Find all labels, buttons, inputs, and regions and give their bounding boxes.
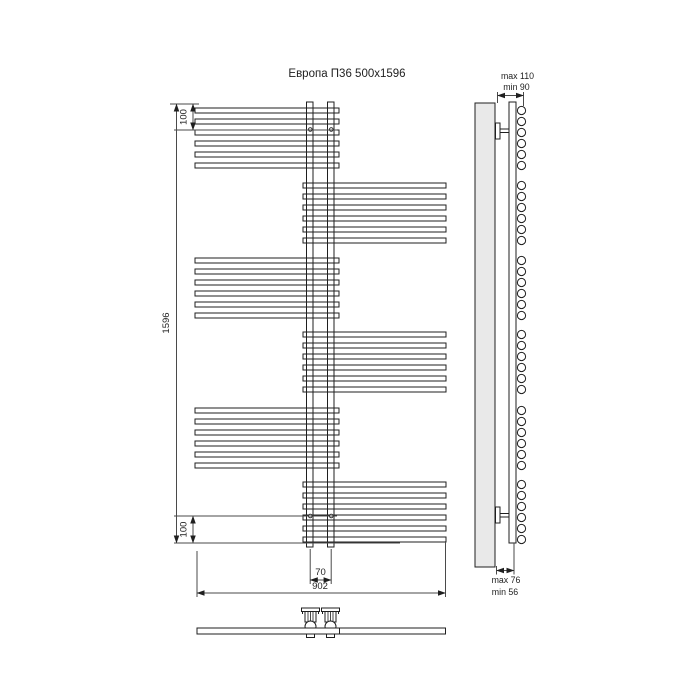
towel-bar (195, 258, 339, 263)
towel-bar (195, 463, 339, 468)
towel-bar (195, 108, 339, 113)
side-tube-end (517, 513, 525, 521)
side-riser-tube (509, 102, 516, 543)
side-tube-end (517, 352, 525, 360)
side-tube-end (517, 267, 525, 275)
side-tube-end (517, 181, 525, 189)
side-tube-end (517, 311, 525, 319)
towel-bar (303, 216, 446, 221)
riser-tube (328, 102, 335, 547)
towel-bar (303, 526, 446, 531)
side-tube-end (517, 278, 525, 286)
towel-bar (195, 441, 339, 446)
side-tube-end (517, 330, 525, 338)
side-tube-end (517, 225, 525, 233)
side-tube-end (517, 341, 525, 349)
towel-bar (195, 313, 339, 318)
towel-bar (195, 119, 339, 124)
valve-cap (302, 608, 320, 612)
drawing-title: Европа П36 500x1596 (288, 68, 405, 80)
side-tube-end (517, 117, 525, 125)
side-tube-end (517, 203, 525, 211)
side-tube-end (517, 150, 525, 158)
side-tube-end (517, 374, 525, 382)
bottom-bracket (496, 507, 510, 523)
side-tube-end (517, 161, 525, 169)
dim-wall-top-max: max 110 (501, 71, 534, 81)
dim-wall-top-min: min 90 (503, 82, 530, 92)
side-tube-end (517, 192, 525, 200)
towel-bar (303, 227, 446, 232)
riser-tube (307, 102, 314, 547)
side-tube-end (517, 480, 525, 488)
bottom-view-profile (197, 628, 446, 634)
side-tube-end (517, 439, 525, 447)
towel-bar (303, 205, 446, 210)
valve-tail (307, 634, 315, 638)
towel-bar (303, 365, 446, 370)
towel-bar (195, 269, 339, 274)
side-tube-end (517, 289, 525, 297)
side-tube-end (517, 406, 525, 414)
towel-bar (195, 130, 339, 135)
dim-bottom-offset: 100 (179, 522, 190, 538)
towel-bar (195, 163, 339, 168)
side-tube-end (517, 139, 525, 147)
wall-panel (475, 103, 495, 567)
towel-bar (303, 332, 446, 337)
towel-bar (195, 430, 339, 435)
side-tube-end (517, 535, 525, 543)
valve-cap (322, 608, 340, 612)
towel-bar (195, 291, 339, 296)
towel-bar (195, 302, 339, 307)
dim-overall-height: 1596 (161, 312, 172, 333)
valve-tail (327, 634, 335, 638)
towel-bar (303, 238, 446, 243)
side-tube-end (517, 428, 525, 436)
towel-bar (195, 280, 339, 285)
towel-bar (303, 504, 446, 509)
radiator-drawing-canvas: Европа П36 500x1596 1596 100 (0, 0, 700, 700)
towel-bar (303, 194, 446, 199)
side-tube-end (517, 363, 525, 371)
towel-bar (303, 343, 446, 348)
dim-overall-width: 902 (312, 581, 328, 592)
bottom-view (197, 628, 446, 634)
side-tube-end (517, 236, 525, 244)
towel-bar (303, 493, 446, 498)
dim-wall-bottom-max: max 76 (492, 575, 521, 585)
towel-bar (195, 152, 339, 157)
side-tube-end (517, 450, 525, 458)
towel-bar (303, 376, 446, 381)
side-view (475, 102, 516, 567)
side-tube-end (517, 502, 525, 510)
towel-bar (303, 354, 446, 359)
side-tube-end (517, 524, 525, 532)
dim-top-offset: 100 (179, 109, 190, 125)
side-tube-end (517, 417, 525, 425)
towel-bar (303, 387, 446, 392)
towel-bar (195, 408, 339, 413)
towel-bar (195, 419, 339, 424)
technical-drawing-page: Европа П36 500x1596 1596 100 (0, 0, 700, 700)
side-tube-end (517, 461, 525, 469)
front-dimension-lines (170, 104, 446, 597)
towel-bar (303, 537, 446, 542)
towel-bar (195, 141, 339, 146)
side-tube-end (517, 214, 525, 222)
side-tube-end (517, 256, 525, 264)
towel-bar (303, 183, 446, 188)
side-tube-end (517, 128, 525, 136)
side-tube-end (517, 385, 525, 393)
top-bracket (496, 123, 510, 139)
dim-pipe-spacing: 70 (315, 567, 326, 578)
side-tube-end (517, 491, 525, 499)
side-tube-end (517, 300, 525, 308)
towel-bar (195, 452, 339, 457)
dim-wall-bottom-min: min 56 (492, 587, 519, 597)
side-tube-end (517, 106, 525, 114)
towel-bar (303, 482, 446, 487)
